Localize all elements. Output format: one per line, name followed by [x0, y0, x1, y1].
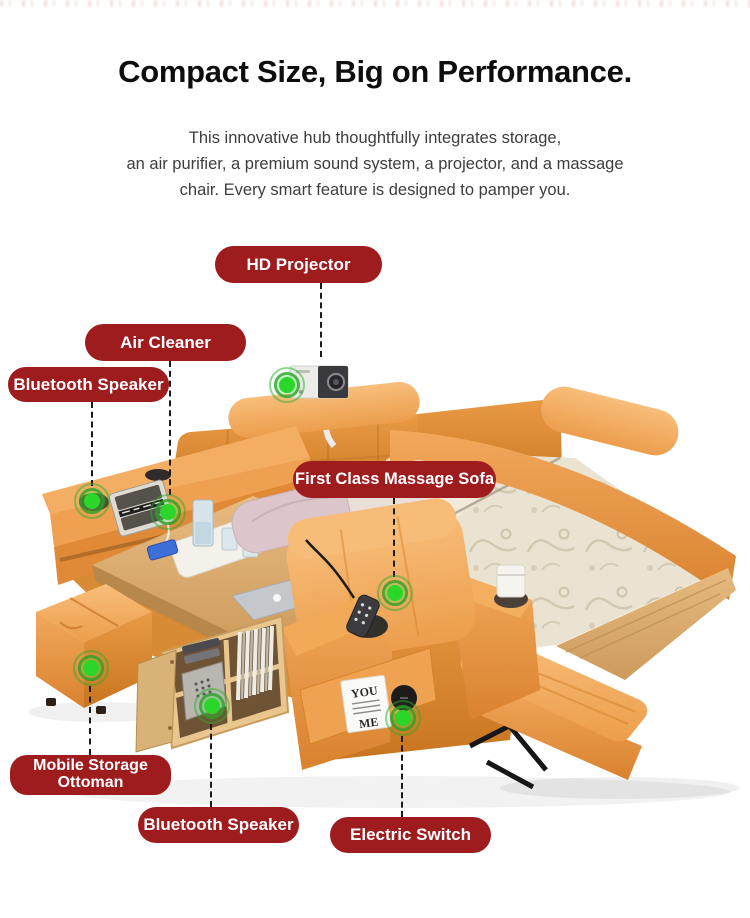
magazine: YOU ME — [341, 675, 392, 733]
badge-electric-switch: Electric Switch — [330, 817, 491, 853]
badge-mobile-storage-ottoman: Mobile Storage Ottoman — [10, 755, 171, 795]
badge-bluetooth-speaker-bottom: Bluetooth Speaker — [138, 807, 299, 843]
connector-massage-sofa — [393, 498, 395, 577]
clipped-red-text-strip — [0, 0, 750, 7]
cabinet-door — [136, 650, 176, 752]
connector-electric-switch — [401, 736, 403, 817]
connector-hd-projector — [320, 283, 322, 357]
indicator-bluetooth-speaker-icon — [74, 483, 110, 519]
indicator-air-cleaner-icon — [150, 494, 186, 530]
indicator-electric-switch-icon — [385, 700, 421, 736]
page-subtitle: This innovative hub thoughtfully integra… — [0, 125, 750, 203]
badge-first-class-massage-sofa: First Class Massage Sofa — [293, 461, 496, 498]
badge-air-cleaner: Air Cleaner — [85, 324, 246, 361]
page-title: Compact Size, Big on Performance. — [0, 54, 750, 90]
subtitle-line-3: chair. Every smart feature is designed t… — [0, 177, 750, 203]
subtitle-line-2: an air purifier, a premium sound system,… — [0, 151, 750, 177]
subtitle-line-1: This innovative hub thoughtfully integra… — [0, 125, 750, 151]
indicator-projector-icon — [269, 367, 305, 403]
badge-bluetooth-speaker-top: Bluetooth Speaker — [8, 367, 169, 402]
marketing-page: Compact Size, Big on Performance. This i… — [0, 0, 750, 918]
round-speaker-icon — [145, 469, 171, 481]
indicator-ottoman-icon — [73, 650, 109, 686]
badge-hd-projector: HD Projector — [215, 246, 382, 283]
connector-bluetooth-top — [91, 402, 93, 486]
indicator-massage-sofa-icon — [377, 575, 413, 611]
connector-air-cleaner — [169, 361, 171, 495]
storage-ottoman — [36, 584, 152, 714]
magazine-text-me: ME — [358, 715, 379, 732]
indicator-shelf-speaker-icon — [194, 688, 230, 724]
coffee-cup — [497, 565, 525, 597]
connector-bluetooth-bottom — [210, 724, 212, 807]
connector-ottoman — [89, 686, 91, 755]
